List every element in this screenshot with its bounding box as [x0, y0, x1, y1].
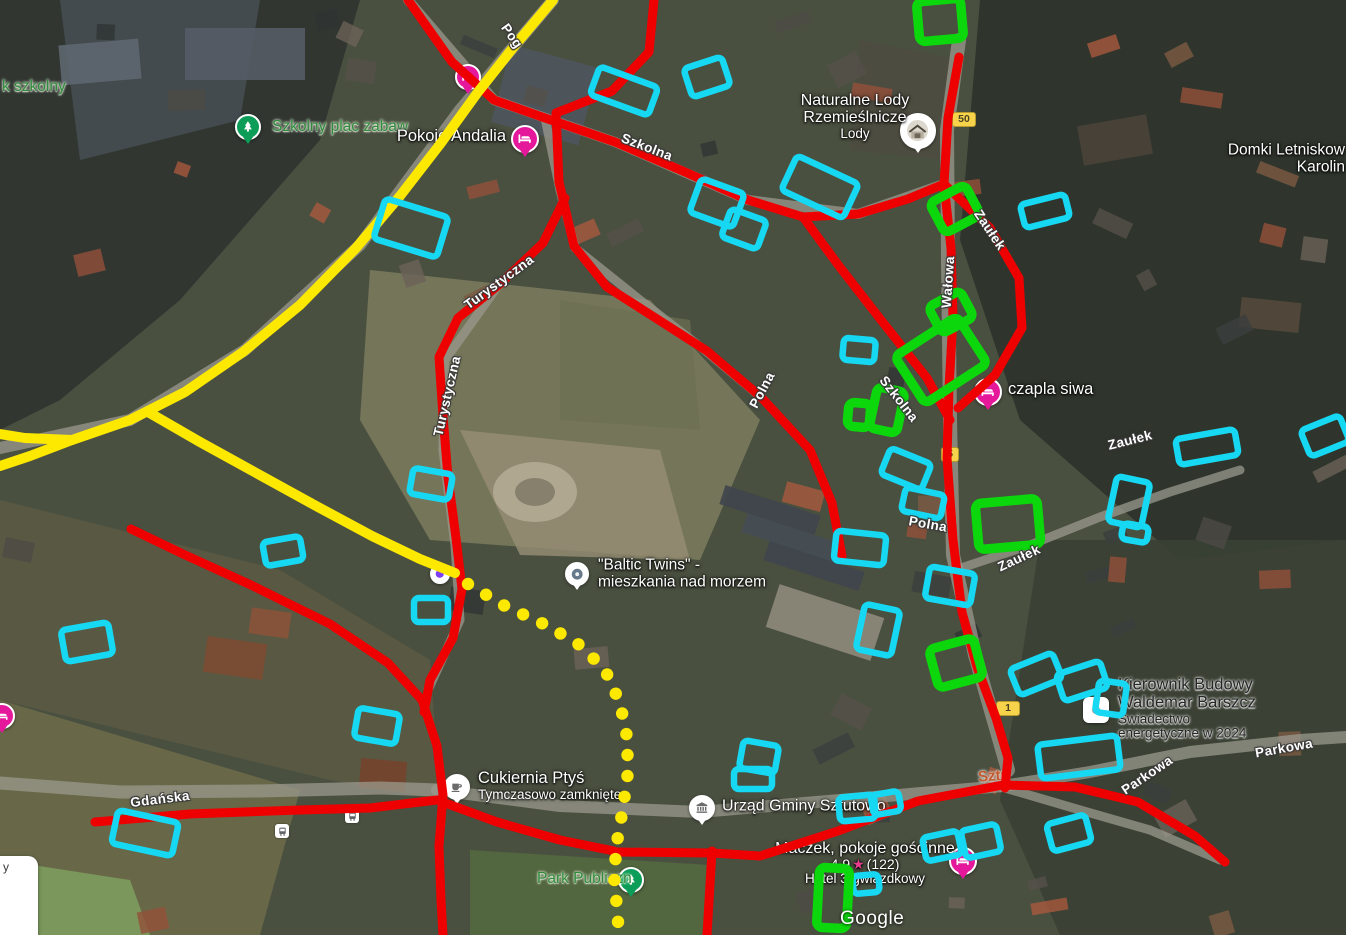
- poi-baltic-twins-text: "Baltic Twins" -mieszkania nad morzem: [598, 558, 766, 591]
- terrain-building: [812, 732, 855, 764]
- terrain-structure: [58, 39, 141, 86]
- dotted-path-annotation: [609, 853, 621, 865]
- terrain-patch: [470, 850, 710, 935]
- dotted-path-annotation: [554, 627, 566, 639]
- terrain-dirt-circle: [493, 462, 577, 522]
- terrain-building: [1142, 781, 1172, 804]
- terrain-building: [174, 161, 192, 178]
- poi-park-szkolny[interactable]: k szkolny: [2, 88, 66, 105]
- edge-label-fragment: y: [3, 860, 9, 874]
- base-road: [947, 40, 1008, 770]
- cyan-building-outline: [1056, 661, 1108, 702]
- lodging-pin[interactable]: [0, 703, 15, 729]
- poi-line: 4.9★(122): [831, 857, 900, 872]
- red-road-annotation: [424, 198, 565, 712]
- cyan-building-outline: [922, 831, 962, 862]
- poi-cukiernia-ptys-pin[interactable]: [444, 774, 470, 800]
- poi-szkolny-plac-zabaw[interactable]: Szkolny plac zabaw: [272, 128, 408, 145]
- base-road: [1005, 788, 1220, 860]
- cyan-building-outline: [590, 66, 659, 115]
- cyan-building-outline: [739, 740, 779, 774]
- terrain-structure: [1077, 114, 1153, 166]
- red-road-annotation: [944, 184, 1022, 408]
- poi-line: Naturalne Lody: [801, 92, 910, 109]
- cyan-building-outline: [262, 536, 304, 566]
- terrain-building: [1180, 87, 1223, 109]
- terrain-patch: [1000, 540, 1346, 935]
- ui-overlay-layer: y Google: [0, 0, 1346, 935]
- poi-baltic-twins[interactable]: "Baltic Twins" -mieszkania nad morzem: [598, 576, 766, 609]
- dotted-path-annotation: [615, 811, 627, 823]
- red-road-annotation: [408, 0, 944, 217]
- terrain-building: [774, 10, 813, 33]
- cyan-building-outline: [838, 794, 876, 821]
- terrain-building: [345, 58, 377, 84]
- red-road-annotation: [556, 0, 654, 113]
- street-label-parkowa: Parkowa: [1119, 752, 1176, 797]
- terrain-building: [1154, 799, 1197, 838]
- cyan-building-outline: [1108, 476, 1151, 528]
- terrain-patch: [0, 860, 150, 935]
- poi-kierownik-budowy-text: Kierownik BudowyWaldemar BarszczŚwiadect…: [1118, 676, 1256, 741]
- dotted-path-annotation: [572, 638, 584, 650]
- terrain-building: [1087, 34, 1120, 58]
- cyan-building-outline: [852, 874, 879, 894]
- terrain-building: [1092, 208, 1133, 239]
- terrain-building: [700, 140, 718, 157]
- terrain-patch: [60, 0, 260, 160]
- terrain-structure: [763, 541, 864, 591]
- poi-maczek-text: Maczek, pokoje gościnne4.9★(122)Hotel 3-…: [775, 840, 955, 887]
- dotted-path-annotation: [621, 770, 633, 782]
- terrain-building: [906, 524, 927, 540]
- cyan-building-outline: [842, 338, 876, 363]
- red-road-annotation: [556, 113, 842, 556]
- lodging-pin[interactable]: [455, 64, 481, 90]
- dotted-path-annotation: [610, 687, 622, 699]
- terrain-building: [1278, 731, 1301, 756]
- cyan-building-outline: [1175, 429, 1239, 465]
- terrain-building: [569, 218, 601, 245]
- terrain-building: [1259, 223, 1286, 248]
- road-number-badge: 1: [996, 701, 1020, 716]
- base-road: [955, 470, 1240, 570]
- cyan-building-outline: [683, 57, 730, 98]
- cyan-building-outline: [1046, 814, 1092, 851]
- road-number-badge: 5: [941, 447, 959, 462]
- terrain-building: [981, 767, 1004, 795]
- poi-line: Lody: [840, 127, 869, 142]
- poi-line: mieszkania nad morzem: [598, 574, 766, 591]
- dotted-path-annotation: [610, 895, 622, 907]
- terrain-building: [399, 259, 426, 288]
- terrain-building: [911, 571, 952, 598]
- terrain-building: [1110, 617, 1137, 638]
- cyan-building-outline: [61, 622, 114, 662]
- poi-pokoje-andalia[interactable]: Pokoje Andalia: [506, 138, 615, 156]
- dotted-path-annotation: [601, 668, 613, 680]
- terrain-building: [851, 82, 893, 103]
- cyan-building-outline: [870, 791, 901, 816]
- poi-line: k szkolny: [2, 79, 66, 96]
- terrain-base: [0, 0, 1346, 935]
- base-road: [1003, 737, 1346, 786]
- terrain-patch: [850, 40, 960, 160]
- cyan-building-outline: [689, 178, 745, 228]
- street-label-turystyczna: Turystyczna: [430, 354, 463, 437]
- red-road-annotation: [1003, 785, 1225, 862]
- cyan-building-outline: [960, 824, 1001, 859]
- dotted-path-annotation: [462, 578, 474, 590]
- poi-line: "Baltic Twins" -: [598, 558, 700, 575]
- cyan-building-outline: [734, 769, 772, 789]
- poi-park-publiczny-text: Park Publiczn: [537, 871, 632, 888]
- dotted-path-annotation: [587, 652, 599, 664]
- terrain-structure: [491, 45, 599, 146]
- poi-line: Rzemieślnicze: [803, 109, 906, 126]
- cyan-building-outline: [856, 604, 901, 656]
- poi-maczek[interactable]: Maczek, pokoje gościnne4.9★(122)Hotel 3-…: [865, 866, 1045, 913]
- terrain-patch: [0, 500, 440, 800]
- terrain-building: [1209, 910, 1235, 935]
- poi-naturalne-lody-text: Naturalne LodyRzemieślniczeLody: [801, 92, 910, 141]
- poi-label-layer: k szkolnySzkolny plac zabawPokoje Andali…: [0, 0, 1346, 935]
- terrain-structure: [741, 513, 842, 563]
- poi-park-szkolny-text: k szkolny: [2, 79, 66, 96]
- poi-line: Pokoje Andalia: [397, 128, 506, 146]
- yellow-road-annotation: [0, 0, 553, 440]
- poi-naturalne-lody-pin[interactable]: [900, 113, 936, 149]
- cyan-building-outline: [414, 598, 448, 622]
- base-road: [408, 0, 944, 214]
- dotted-path-annotation: [612, 916, 624, 928]
- terrain-structure: [185, 28, 305, 80]
- terrain-building: [794, 887, 821, 914]
- poi-cukiernia-ptys[interactable]: Cukiernia PtyśTymczasowo zamknięte: [478, 788, 621, 820]
- terrain-structure: [766, 584, 885, 661]
- street-label-turystyczna: Turystyczna: [461, 252, 536, 312]
- poi-line: Świadectwo: [1118, 712, 1190, 727]
- street-label-szkolna: Szkolna: [619, 130, 675, 163]
- red-road-annotation: [95, 800, 437, 822]
- poi-maczek-pin[interactable]: [949, 847, 977, 875]
- terrain-building: [460, 35, 498, 58]
- terrain-building: [137, 907, 170, 934]
- poi-domki-letniskowe-text: Domki LetniskowKarolin: [1228, 143, 1345, 176]
- cyan-building-outline: [925, 566, 976, 606]
- bus-stop-icon[interactable]: [275, 824, 289, 838]
- green-building-outline: [929, 185, 980, 234]
- cyan-building-outline: [901, 487, 945, 519]
- base-road: [545, 118, 762, 398]
- poi-urzad-gminy[interactable]: Urząd Gminy Sztutowo: [722, 807, 886, 824]
- terrain-structure: [1239, 297, 1302, 333]
- street-label-polna: Polna: [746, 369, 777, 410]
- green-building-outline: [916, 0, 963, 42]
- edge-info-card: [0, 856, 38, 935]
- terrain-building: [309, 202, 331, 223]
- terrain-building: [466, 179, 500, 199]
- terrain-building: [886, 367, 906, 393]
- poi-line: Waldemar Barszcz: [1118, 694, 1256, 712]
- dotted-path-annotation: [536, 617, 548, 629]
- dotted-path-annotation: [616, 707, 628, 719]
- terrain-building: [918, 495, 954, 516]
- terrain-building: [1259, 569, 1291, 589]
- terrain-building: [463, 285, 493, 310]
- cyan-building-outline: [1037, 735, 1121, 778]
- rating-star-icon: ★: [850, 856, 867, 872]
- street-label-pog: Pog: [498, 21, 526, 51]
- poi-line: Tymczasowo zamknięte: [478, 788, 621, 803]
- google-watermark[interactable]: Google: [840, 908, 904, 930]
- red-road-annotation: [618, 852, 712, 853]
- poi-pokoje-andalia-text: Pokoje Andalia: [397, 128, 506, 146]
- terrain-patch: [460, 430, 690, 560]
- terrain-dirt-circle: [515, 478, 555, 506]
- poi-line: Szkolny plac zabaw: [272, 119, 408, 136]
- red-road-annotation: [707, 851, 712, 935]
- cyan-building-outline: [1009, 652, 1062, 695]
- terrain-patch: [360, 270, 760, 560]
- poi-line: energetyczne w 2024: [1118, 727, 1246, 742]
- terrain-building: [1085, 565, 1118, 584]
- poi-baltic-twins-pin[interactable]: [565, 562, 589, 586]
- cyan-building-outline: [1095, 680, 1127, 716]
- annotation-layer: [0, 0, 1346, 935]
- base-road: [437, 786, 1003, 812]
- dotted-path-annotation: [620, 728, 632, 740]
- terrain-building: [1195, 517, 1231, 550]
- terrain-building: [1164, 42, 1194, 68]
- terrain-patch: [0, 700, 300, 935]
- cyan-building-outline: [1121, 523, 1149, 543]
- cyan-building-outline: [1300, 415, 1346, 457]
- poi-kierownik-budowy[interactable]: Kierownik BudowyWaldemar BarszczŚwiadect…: [1118, 712, 1256, 777]
- terrain-building: [1312, 454, 1346, 483]
- poi-szkolny-plac-zabaw-text: Szkolny plac zabaw: [272, 119, 408, 136]
- street-label-zaułek: Zaułek: [1106, 427, 1153, 452]
- terrain-building: [73, 249, 106, 277]
- poi-park-publiczny[interactable]: Park Publiczn: [537, 880, 632, 897]
- terrain-building: [2, 537, 35, 563]
- terrain-structure: [203, 636, 267, 680]
- cyan-building-outline: [409, 468, 453, 501]
- green-building-outline: [869, 387, 905, 434]
- terrain-building: [573, 646, 609, 670]
- terrain-patch: [560, 300, 700, 430]
- terrain-building: [954, 623, 982, 646]
- green-building-outline: [847, 402, 871, 428]
- dotted-path-annotation: [498, 599, 510, 611]
- dotted-path-annotation: [621, 749, 633, 761]
- poi-szkolny-plac-zabaw-pin[interactable]: [235, 114, 261, 140]
- satellite-terrain-layer: [0, 0, 1346, 935]
- street-label-gdańska: Gdańska: [129, 788, 190, 810]
- cyan-building-outline: [354, 708, 401, 745]
- poi-line: Karolin: [1297, 159, 1345, 176]
- street-label-zaułek: Zaułek: [995, 542, 1042, 575]
- street-label-wałowa: Wałowa: [939, 255, 958, 308]
- poi-line: Domki Letniskow: [1228, 143, 1345, 160]
- terrain-building: [782, 481, 826, 512]
- terrain-building: [1256, 161, 1299, 187]
- terrain-building: [827, 51, 867, 88]
- red-road-annotation: [437, 800, 614, 851]
- terrain-building: [949, 897, 965, 909]
- green-building-outline: [895, 316, 988, 403]
- terrain-building: [1136, 269, 1157, 292]
- base-road: [0, 0, 553, 448]
- green-building-outline: [929, 638, 984, 689]
- terrain-building: [1300, 236, 1328, 263]
- bus-stop-icon[interactable]: [345, 809, 359, 823]
- poi-line: Hotel 3-gwiazdkowy: [805, 873, 925, 888]
- locality-label: Sztu: [977, 766, 1010, 785]
- cyan-building-outline: [880, 448, 931, 490]
- poi-czapla-siwa-pin[interactable]: [974, 378, 1002, 406]
- terrain-structure: [248, 607, 291, 638]
- transit-dot-icon[interactable]: [430, 564, 450, 584]
- dotted-path-annotation: [517, 608, 529, 620]
- dotted-path-annotation: [618, 791, 630, 803]
- poi-naturalne-lody[interactable]: Naturalne LodyRzemieślniczeLody: [855, 119, 964, 168]
- yellow-road-annotation: [0, 440, 72, 466]
- poi-pokoje-andalia-pin[interactable]: [511, 125, 539, 153]
- dotted-path-annotation: [611, 832, 623, 844]
- poi-line: Urząd Gminy Sztutowo: [722, 798, 886, 815]
- base-road: [0, 783, 437, 792]
- poi-kierownik-budowy-icon[interactable]: [1083, 697, 1109, 723]
- red-road-annotation: [712, 785, 1003, 856]
- terrain-building: [860, 793, 894, 825]
- terrain-patch: [0, 0, 360, 430]
- poi-line: Kierownik Budowy: [1118, 676, 1253, 694]
- terrain-building: [1215, 314, 1253, 345]
- terrain-patch: [960, 0, 1346, 560]
- terrain-structure: [359, 758, 407, 792]
- terrain-building: [606, 218, 644, 247]
- terrain-building: [523, 85, 548, 106]
- cyan-building-outline: [834, 530, 887, 565]
- poi-urzad-gminy-text: Urząd Gminy Sztutowo: [722, 798, 886, 815]
- cyan-building-outline: [1020, 194, 1070, 228]
- poi-urzad-gminy-pin[interactable]: [689, 795, 715, 821]
- terrain-building: [944, 179, 981, 198]
- terrain-building: [866, 810, 890, 823]
- cyan-building-outline: [111, 810, 179, 856]
- yellow-road-annotation: [148, 412, 455, 573]
- terrain-building: [830, 693, 872, 731]
- poi-czapla-siwa-text: czapla siwa: [1008, 381, 1093, 399]
- red-road-annotation: [944, 57, 1008, 788]
- street-label-parkowa: Parkowa: [1254, 736, 1314, 761]
- red-road-annotation: [803, 217, 950, 420]
- street-label-polna: Polna: [908, 513, 949, 535]
- green-building-outline: [975, 498, 1041, 549]
- terrain-structure: [719, 485, 820, 535]
- map-viewport[interactable]: k szkolnySzkolny plac zabawPokoje Andali…: [0, 0, 1346, 935]
- terrain-building: [1108, 556, 1127, 583]
- cyan-building-outline: [721, 208, 767, 249]
- street-label-zaułek: Zaułek: [971, 207, 1009, 253]
- poi-line: czapla siwa: [1008, 381, 1093, 399]
- terrain-building: [167, 89, 205, 111]
- red-road-annotation: [131, 529, 443, 935]
- green-building-outline: [816, 867, 849, 928]
- poi-line: Maczek, pokoje gościnne: [775, 840, 955, 857]
- terrain-building: [314, 8, 341, 31]
- dotted-path-annotation: [608, 874, 620, 886]
- terrain-building: [96, 24, 115, 40]
- poi-park-publiczny-pin[interactable]: [618, 867, 644, 893]
- terrain-building: [448, 586, 486, 614]
- terrain-building: [1030, 898, 1068, 916]
- cyan-building-outline: [373, 198, 448, 257]
- street-label-layer: PogSzkolnaTurystycznaTurystycznaPolnaWał…: [0, 0, 1346, 935]
- road-number-badge: 50: [952, 112, 976, 127]
- dotted-path-annotation: [480, 589, 492, 601]
- poi-line: Cukiernia Ptyś: [478, 770, 584, 788]
- poi-cukiernia-ptys-text: Cukiernia PtyśTymczasowo zamknięte: [478, 770, 621, 802]
- poi-line: Park Publiczn: [537, 871, 632, 888]
- base-road: [428, 283, 500, 690]
- poi-czapla-siwa[interactable]: czapla siwa: [1008, 391, 1093, 409]
- terrain-building: [1103, 525, 1129, 545]
- street-label-szkolna: Szkolna: [877, 373, 922, 425]
- green-building-outline: [928, 290, 974, 333]
- terrain-building: [336, 21, 364, 48]
- cyan-building-outline: [781, 155, 859, 218]
- terrain-building: [1027, 876, 1048, 891]
